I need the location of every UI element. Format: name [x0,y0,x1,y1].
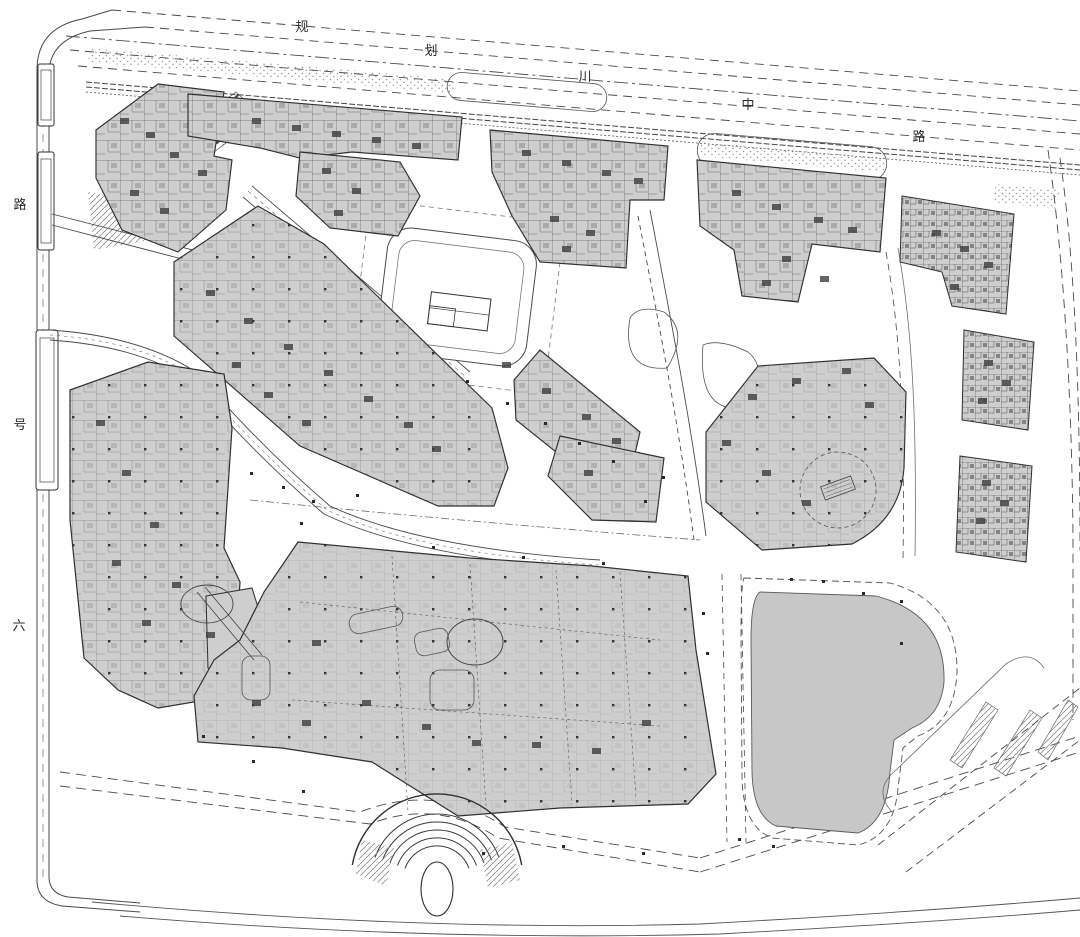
building-top-slab-west-detail [188,94,462,160]
left-bay-outer-1 [38,64,54,126]
amphitheater-arc-3 [390,830,484,863]
road-label-left-2: 六 [12,619,25,634]
building-mall-cols [194,542,716,816]
building-tower-east-south-detail [956,456,1032,562]
amphitheater-stage-oval [421,862,453,916]
building-east-mid-block-cols [706,358,906,550]
parking-strip-1 [950,702,998,768]
right-boundary-2 [1060,158,1080,550]
left-bay-outer-3 [36,330,58,490]
stipple-median-3 [992,184,1060,209]
road-label-top-3: 中 [741,98,754,113]
road-label-left-0: 路 [13,197,26,213]
building-top-slab-east-detail [697,160,886,302]
amphitheater-arc-2 [398,838,477,866]
road-label-top-0: 规 [295,20,308,35]
building-tower-east-mid-detail [962,330,1034,430]
road-label-top-4: 路 [912,129,925,145]
road-label-top-1: 划 [424,44,437,59]
amphitheater-hatch-west [356,840,394,886]
bottom-frame-2 [120,910,1080,936]
building-tower-northeast-detail [900,196,1014,314]
site-plan-svg: 规划川中路路号六 [0,0,1080,937]
left-road-bottom-arc-1 [37,882,140,912]
left-road-bottom-arc-2 [49,878,140,903]
top-road-line-1 [112,10,1080,91]
amphitheater-arc-4 [383,822,492,860]
road-label-left-1: 号 [13,418,26,433]
building-mid-block-b-detail [548,436,664,522]
southeast-drive-2 [906,740,1080,872]
road-label-top-2: 川 [578,70,591,85]
street-pond-west-a [722,574,727,842]
parking-strip-3 [1038,700,1078,760]
parking-strip-2 [994,710,1042,776]
stipple-median-1 [88,48,455,93]
pond [751,592,944,833]
amphitheater-arc-1 [405,846,469,869]
amphitheater-hatch-east [480,842,520,888]
left-bay-outer-2 [38,152,54,250]
site-plan: 规划川中路路号六 [0,0,1080,937]
parcel-island-2 [629,309,678,368]
